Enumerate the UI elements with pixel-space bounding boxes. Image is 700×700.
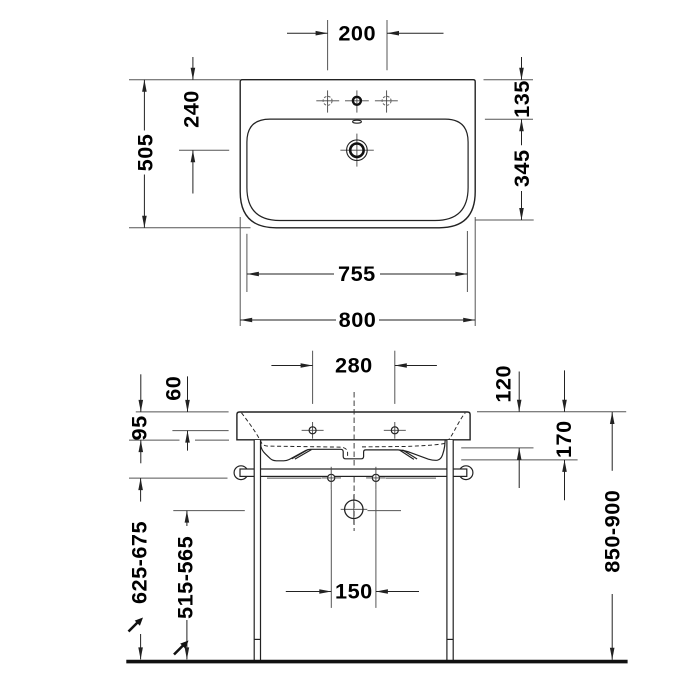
svg-text:280: 280 — [335, 352, 373, 377]
svg-text:625-675: 625-675 — [126, 521, 151, 604]
svg-text:515-565: 515-565 — [172, 536, 197, 619]
svg-text:850-900: 850-900 — [600, 490, 625, 573]
svg-text:200: 200 — [338, 21, 376, 46]
svg-text:120: 120 — [490, 365, 515, 403]
svg-text:135: 135 — [509, 80, 534, 118]
svg-text:170: 170 — [551, 420, 576, 458]
svg-text:755: 755 — [338, 261, 376, 286]
svg-text:800: 800 — [339, 307, 377, 332]
svg-text:505: 505 — [133, 134, 158, 172]
svg-text:95: 95 — [127, 415, 152, 440]
svg-text:150: 150 — [335, 579, 373, 604]
svg-text:240: 240 — [178, 90, 203, 128]
svg-text:345: 345 — [509, 149, 534, 187]
svg-text:60: 60 — [160, 376, 185, 401]
